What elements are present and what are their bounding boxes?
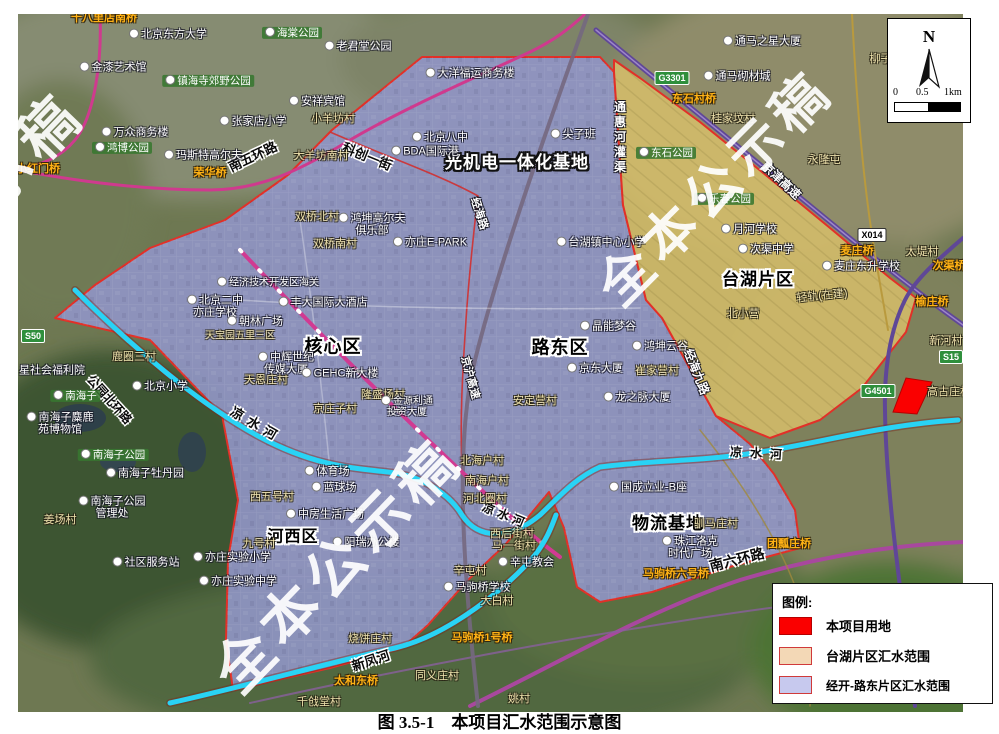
legend-label: 经开-路东片区汇水范围: [826, 677, 950, 694]
poi-icon: [7, 365, 17, 375]
legend-swatch-project: [779, 617, 812, 635]
scale-box: N 0 0.5 1km: [887, 18, 971, 123]
legend-swatch-taihu: [779, 647, 812, 665]
legend-label: 本项目用地: [826, 616, 891, 635]
scale-tick: 0: [893, 87, 898, 98]
north-arrow-icon: [888, 45, 970, 91]
legend-swatch-jingkai: [779, 676, 812, 694]
legend-label: 台湖片区汇水范围: [826, 646, 930, 665]
scale-ticks: 0 0.5 1km: [888, 87, 970, 99]
legend: 图例: 本项目用地 台湖片区汇水范围 经开-路东片区汇水范围: [772, 583, 993, 704]
lake: [100, 452, 136, 472]
scale-tick: 1km: [944, 87, 962, 98]
legend-item: 本项目用地: [779, 616, 891, 635]
legend-title: 图例:: [782, 592, 812, 611]
north-label: N: [888, 27, 970, 47]
figure-caption: 图 3.5-1 本项目汇水范围示意图: [0, 708, 999, 733]
lake: [54, 404, 106, 432]
scale-tick: 0.5: [916, 87, 929, 98]
figure-map: 光机电一体化基地核心区路东区台湖片区河西区物流基地南五环路科创一街南六环路公园北…: [0, 0, 999, 734]
legend-item: 台湖片区汇水范围: [779, 646, 930, 665]
lake: [178, 432, 206, 472]
scale-bar: [894, 102, 961, 112]
legend-item: 经开-路东片区汇水范围: [779, 676, 950, 694]
